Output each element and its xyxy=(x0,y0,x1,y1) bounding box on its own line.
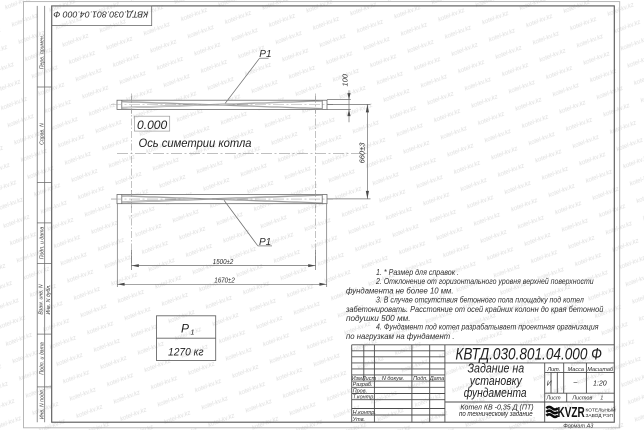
svg-text:4. Фундамент под котел разраба: 4. Фундамент под котел разрабатывает про… xyxy=(376,323,599,332)
svg-text:Инв. N дубл.: Инв. N дубл. xyxy=(46,284,52,314)
svg-text:1500±2: 1500±2 xyxy=(213,257,234,266)
svg-text:по техническому задание: по техническому задание xyxy=(459,410,533,418)
svg-text:фундамента: фундамента xyxy=(464,386,527,400)
svg-text:P1: P1 xyxy=(259,49,271,60)
svg-text:Н.контр.: Н.контр. xyxy=(353,410,376,416)
svg-text:KVZR: KVZR xyxy=(558,405,586,421)
svg-text:Перв. примен.: Перв. примен. xyxy=(39,35,45,69)
svg-text:Формат А3: Формат А3 xyxy=(563,424,594,430)
svg-text:Пров.: Пров. xyxy=(353,388,368,394)
svg-text:Ось симетрии котла: Ось симетрии котла xyxy=(139,138,252,150)
svg-text:0.000: 0.000 xyxy=(137,120,168,132)
svg-text:Разраб.: Разраб. xyxy=(353,382,373,388)
svg-text:Взам. инв. N: Взам. инв. N xyxy=(39,284,45,314)
svg-text:3. В случае отсутствия бетонно: 3. В случае отсутствия бетонного пола пл… xyxy=(376,296,584,305)
svg-text:Подп.: Подп. xyxy=(413,376,428,382)
svg-text:Подп. и дата: Подп. и дата xyxy=(39,342,45,375)
svg-text:Листов: Листов xyxy=(571,396,592,402)
svg-text:Подп. и дата: Подп. и дата xyxy=(39,227,45,260)
svg-text:660±3: 660±3 xyxy=(357,142,366,164)
svg-text:100: 100 xyxy=(341,73,350,86)
svg-text:1:20: 1:20 xyxy=(593,381,607,388)
svg-text:N докум.: N докум. xyxy=(382,376,404,382)
svg-text:1: 1 xyxy=(191,330,195,337)
svg-text:Р: Р xyxy=(181,322,189,336)
svg-text:–: – xyxy=(573,379,578,386)
svg-text:ЗАВОД РЭП: ЗАВОД РЭП xyxy=(586,413,614,419)
svg-text:Утв.: Утв. xyxy=(352,417,366,423)
svg-text:Дата: Дата xyxy=(429,376,445,382)
svg-text:1670±2: 1670±2 xyxy=(214,276,235,285)
svg-text:1: 1 xyxy=(600,396,603,402)
svg-text:Справ. N: Справ. N xyxy=(39,123,45,145)
svg-text:P1: P1 xyxy=(259,237,271,248)
svg-text:1. * Размер для справок .: 1. * Размер для справок . xyxy=(376,268,459,277)
svg-text:КВТД.030.801.04.000 Ф: КВТД.030.801.04.000 Ф xyxy=(53,10,148,20)
svg-text:Лист: Лист xyxy=(361,376,377,382)
svg-text:1270 кг: 1270 кг xyxy=(168,346,204,358)
svg-text:по нагрузкам на фундамент .: по нагрузкам на фундамент . xyxy=(346,332,455,341)
svg-text:Инв. N подл.: Инв. N подл. xyxy=(39,389,45,419)
svg-text:Задание на: Задание на xyxy=(468,361,525,375)
svg-text:фундамента не более 10 мм.: фундамента не более 10 мм. xyxy=(346,286,454,295)
svg-text:Лит.: Лит. xyxy=(546,367,560,373)
svg-text:забетонировать. Расстояние от: забетонировать. Расстояние от осей крайн… xyxy=(345,305,604,314)
svg-text:Масса: Масса xyxy=(568,367,584,373)
svg-text:Лист: Лист xyxy=(545,396,561,402)
svg-text:Т.контр.: Т.контр. xyxy=(353,395,375,401)
svg-text:2. Отклонение от горизонтально: 2. Отклонение от горизонтального уровня … xyxy=(375,277,594,286)
svg-text:Масштаб: Масштаб xyxy=(587,367,614,373)
